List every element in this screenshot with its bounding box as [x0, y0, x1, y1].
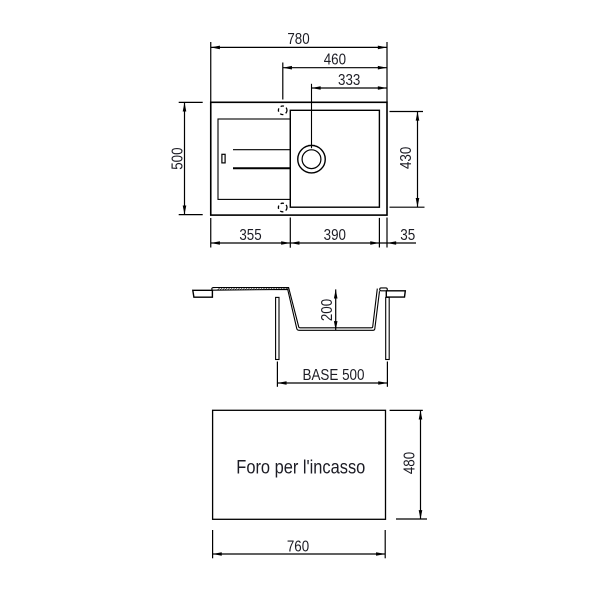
svg-text:460: 460	[324, 51, 347, 68]
svg-text:480: 480	[402, 452, 419, 475]
svg-text:BASE 500: BASE 500	[303, 367, 365, 384]
svg-text:760: 760	[287, 538, 310, 555]
svg-text:355: 355	[239, 227, 262, 244]
svg-text:333: 333	[338, 72, 360, 89]
svg-text:Foro per l'incasso: Foro per l'incasso	[236, 457, 365, 478]
svg-text:35: 35	[400, 227, 415, 244]
svg-text:780: 780	[287, 31, 310, 48]
svg-text:500: 500	[169, 147, 186, 170]
svg-text:200: 200	[319, 299, 336, 322]
svg-text:430: 430	[398, 146, 415, 169]
svg-text:390: 390	[324, 227, 347, 244]
